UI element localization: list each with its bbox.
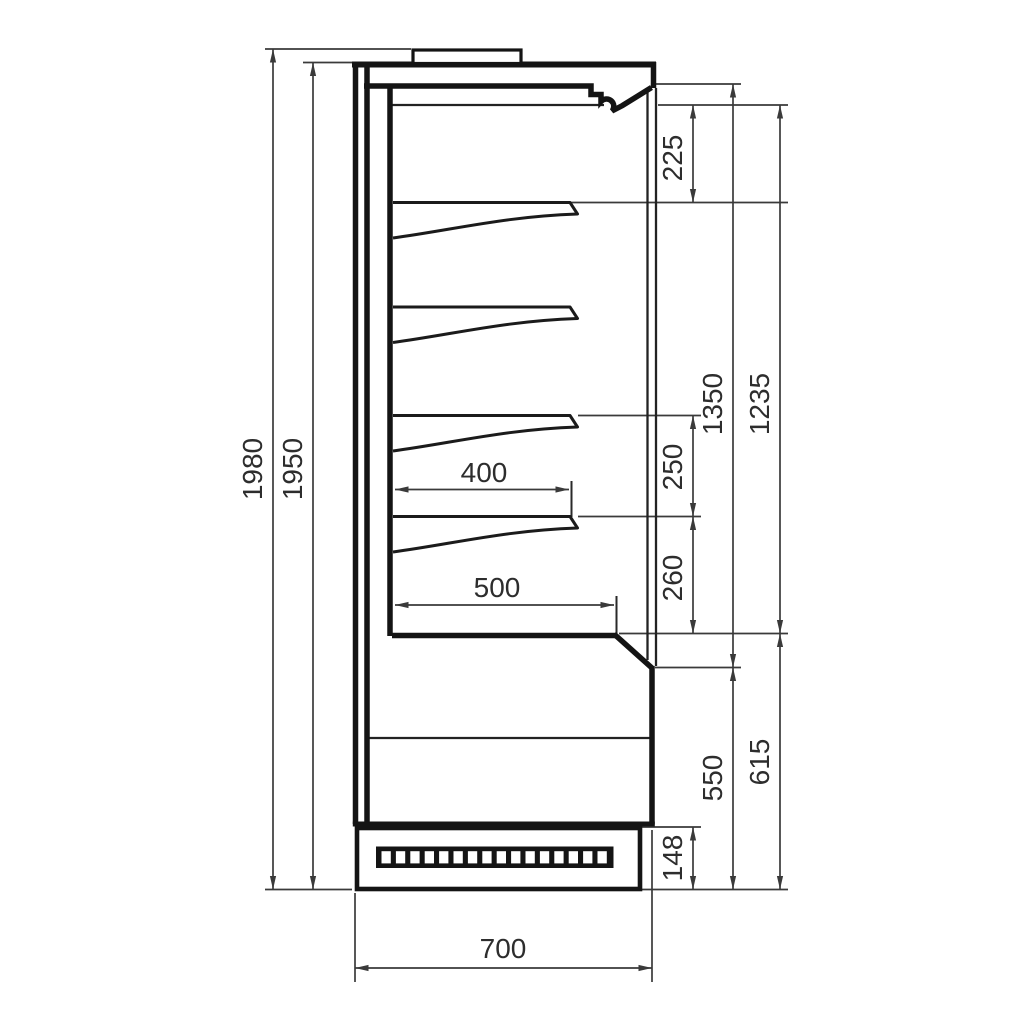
top-cap — [413, 50, 521, 64]
dimension-body-height: 1950 — [277, 63, 313, 890]
dimension-shelf-to-deck: 260 — [657, 517, 693, 634]
dimension-deck-depth: 500 — [395, 572, 617, 634]
dimension-lower-height-front: 550 — [697, 668, 733, 890]
dimension-interior-height-front: 1350 — [697, 84, 733, 668]
shelf-2 — [393, 307, 578, 343]
shelf-3 — [393, 416, 578, 452]
dim-label-lower-height-outer: 615 — [744, 739, 775, 786]
dim-label-interior-height-inner: 1235 — [744, 373, 775, 435]
dimension-interior-height-inner: 1235 — [744, 105, 780, 634]
dim-label-lower-height-front: 550 — [697, 755, 728, 802]
dim-label-plinth-height: 148 — [657, 835, 688, 882]
dim-label-body-height: 1950 — [277, 438, 308, 500]
dimension-shelf-depth: 400 — [395, 457, 572, 517]
dimension-lower-height-outer: 615 — [744, 634, 780, 890]
deck-front-diagonal — [614, 634, 652, 668]
dimension-plinth-height: 148 — [657, 827, 693, 890]
dim-label-shelf-depth: 400 — [461, 457, 508, 488]
dimension-overall-height: 1980 — [237, 49, 273, 890]
dim-label-overall-depth: 700 — [480, 933, 527, 964]
dimension-overall-depth: 700 — [355, 933, 652, 968]
side-glass-panel — [648, 88, 657, 666]
base-plinth — [357, 828, 640, 889]
ventilation-grille — [376, 847, 614, 869]
dimension-canopy-to-top-shelf: 225 — [657, 105, 693, 203]
cabinet-section-drawing: 1980 1950 225 250 260 148 1350 550 1235 … — [0, 0, 1024, 1024]
technical-drawing-page: 1980 1950 225 250 260 148 1350 550 1235 … — [0, 0, 1024, 1024]
dimension-shelf-spacing: 250 — [657, 416, 693, 517]
dim-label-interior-height-front: 1350 — [697, 373, 728, 435]
dim-label-shelf-spacing: 250 — [657, 444, 688, 491]
shelf-4 — [393, 517, 578, 553]
dim-label-deck-depth: 500 — [474, 572, 521, 603]
shelf-1 — [393, 203, 578, 239]
canopy-air-outlet — [364, 86, 652, 111]
dim-label-overall-height: 1980 — [237, 438, 268, 500]
dim-label-shelf-to-deck: 260 — [657, 555, 688, 602]
dim-label-canopy-to-top-shelf: 225 — [657, 135, 688, 182]
